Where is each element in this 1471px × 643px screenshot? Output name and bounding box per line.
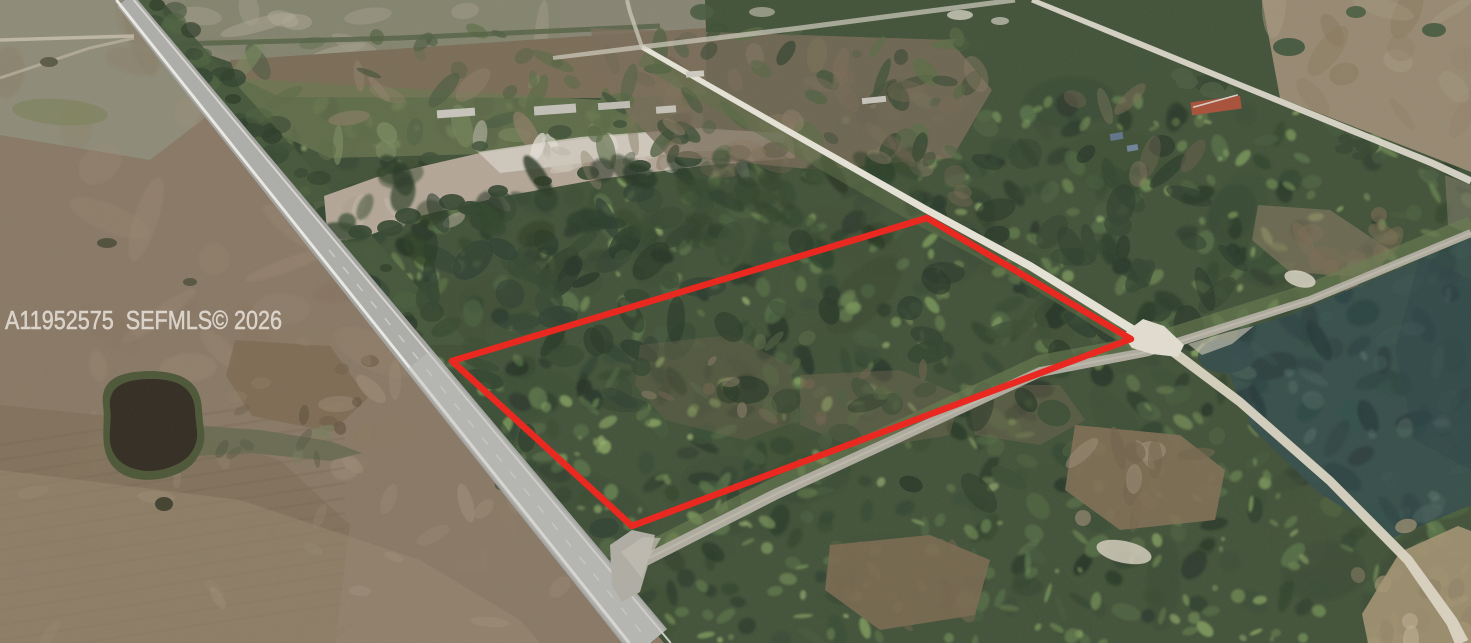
svg-text:A11952575 SEFMLS© 2026: A11952575 SEFMLS© 2026 <box>5 305 282 335</box>
